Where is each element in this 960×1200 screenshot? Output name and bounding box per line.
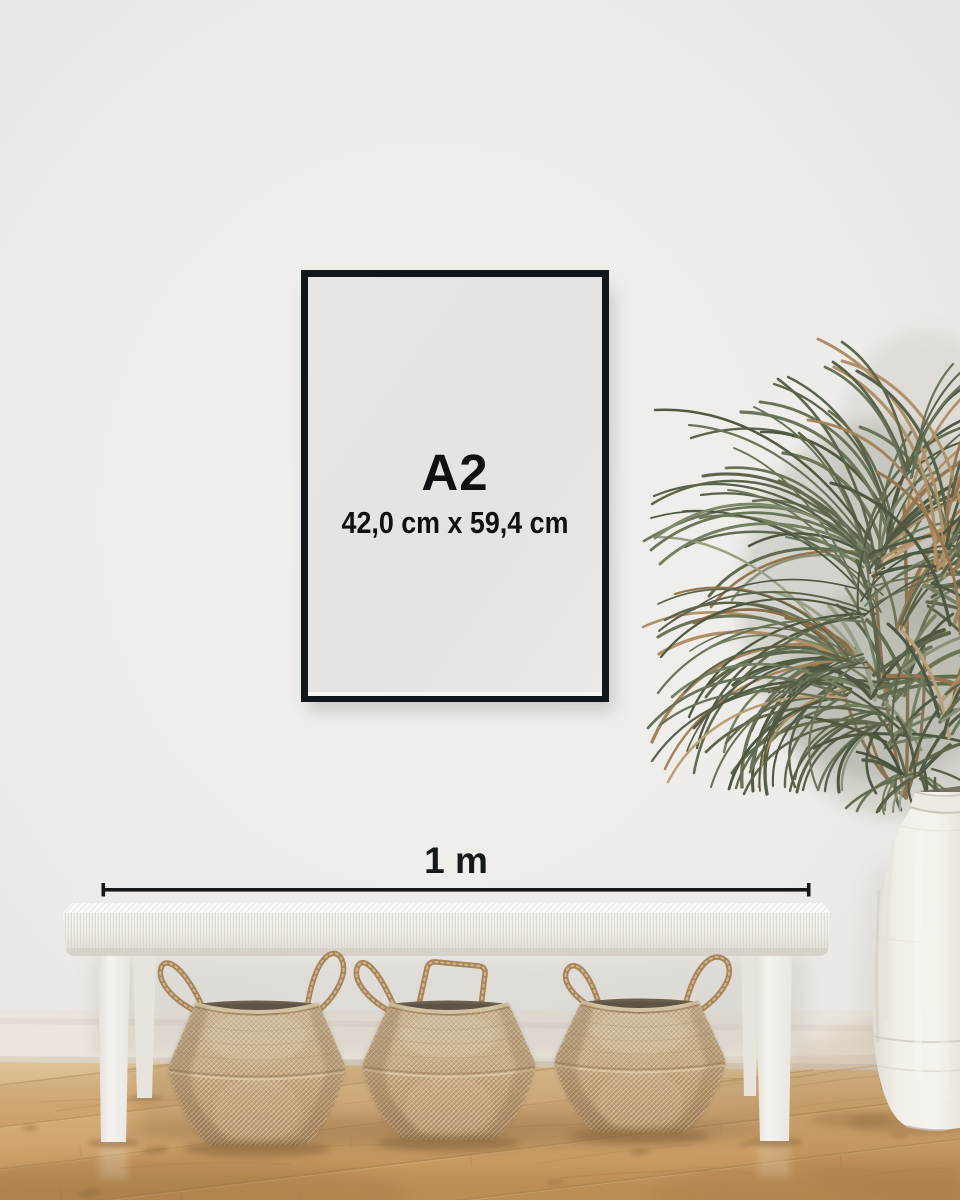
svg-text:42,0 cm x 59,4 cm: 42,0 cm x 59,4 cm: [342, 505, 569, 540]
svg-text:1 m: 1 m: [424, 840, 488, 881]
svg-text:A2: A2: [421, 444, 488, 501]
